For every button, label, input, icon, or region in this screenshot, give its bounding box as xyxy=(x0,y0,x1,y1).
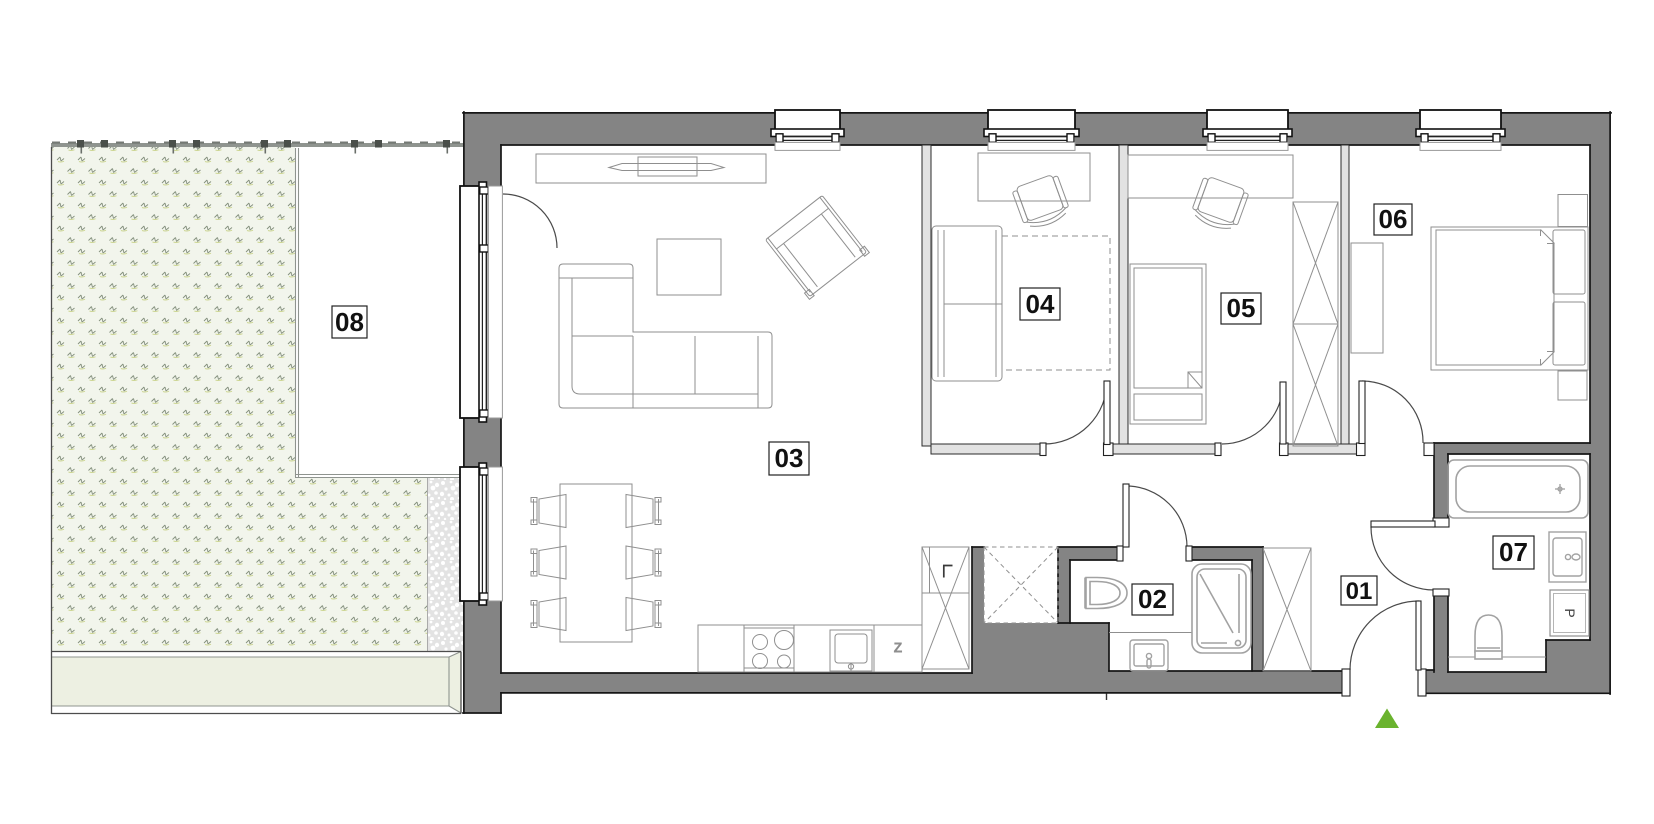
svg-text:08: 08 xyxy=(335,307,364,337)
svg-text:Z: Z xyxy=(894,640,902,655)
svg-text:07: 07 xyxy=(1499,537,1528,567)
svg-text:04: 04 xyxy=(1026,289,1055,319)
svg-text:03: 03 xyxy=(775,443,804,473)
svg-text:05: 05 xyxy=(1227,293,1256,323)
svg-text:02: 02 xyxy=(1138,584,1167,614)
svg-text:P: P xyxy=(1562,608,1578,617)
svg-text:01: 01 xyxy=(1346,578,1373,605)
svg-text:06: 06 xyxy=(1379,204,1408,234)
